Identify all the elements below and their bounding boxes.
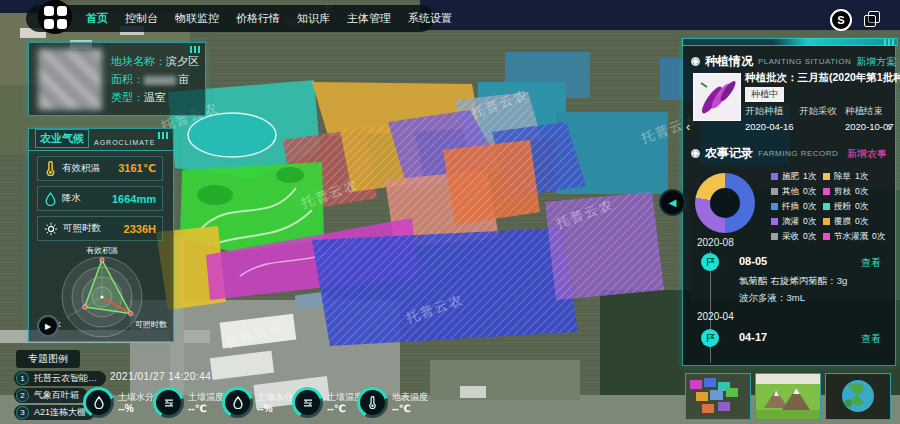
legend-item: 节水灌溉0次 (823, 229, 885, 244)
field-label: 开始种植 (745, 105, 783, 118)
sensor-soil-moisture-30[interactable]: 土壤水分30--% (83, 387, 164, 418)
legend-item: 施肥1次 (771, 169, 816, 184)
layer-number-badge: 1 (16, 372, 29, 385)
nav-item-knowledge-base[interactable]: 知识库 (297, 11, 330, 26)
legend-swatch (823, 233, 830, 240)
timeline-month: 2020-08 (697, 237, 734, 248)
panel-ticks-icon (158, 132, 168, 139)
sun-icon (44, 222, 58, 236)
section-bullet-icon (691, 149, 700, 158)
legend-swatch (771, 188, 778, 195)
stat-rainfall: 降水 1664mm (37, 186, 163, 211)
legend-item: 扦插0次 (771, 199, 816, 214)
layer-number-badge: 3 (16, 406, 29, 419)
legend-swatch (771, 233, 778, 240)
crop-photo-eggplant (693, 73, 741, 121)
droplet-icon (93, 396, 105, 409)
legend-swatch (823, 218, 830, 225)
legend-swatch (823, 188, 830, 195)
legend-item: 滴灌0次 (771, 214, 816, 229)
plot-area-row: 面积：亩 (111, 70, 199, 88)
farming-legend-col2: 除草1次 剪枝0次 授粉0次 覆膜0次 节水灌溉0次 (823, 169, 885, 244)
terrain-view-thumbnail[interactable] (755, 373, 821, 420)
carousel-prev-icon[interactable]: ‹ (686, 119, 690, 134)
planting-batch: 种植批次：三月茄(2020年第1批种植) (745, 71, 900, 85)
timeline-node-flag-icon (701, 253, 719, 271)
status-badge: 种植中 (745, 87, 784, 102)
agroclimate-panel: 农业气候 AGROCLIMATE 有效积温 3161℃ 降水 1664mm 可照… (28, 128, 174, 342)
thermometer-icon (367, 396, 378, 409)
nav-item-entity-management[interactable]: 主体管理 (347, 11, 391, 26)
field-label: 开始采收 (799, 105, 837, 118)
legend-item: 其他0次 (771, 184, 816, 199)
raindrop-icon (44, 192, 57, 206)
layer-item-1[interactable]: 1 托普云农智能… (14, 371, 106, 386)
agroclimate-title: 农业气候 (35, 129, 89, 148)
nav-item-price-market[interactable]: 价格行情 (236, 11, 280, 26)
play-button[interactable]: ▶ (37, 315, 59, 337)
nav-item-home[interactable]: 首页 (86, 11, 108, 26)
legend-item: 剪枝0次 (823, 184, 885, 199)
sensor-surface-temp[interactable]: 地表温度--℃ (357, 387, 428, 418)
radar-axis-top: 有效积温 (86, 246, 118, 255)
smart-agriculture-dashboard: 托普云农 托普云农 托普云农 托普云农 托普云农 托普云农 托普云农 托普云农 … (0, 0, 900, 424)
farming-section-header: 农事记录 FARMING RECORD 新增农事 (691, 145, 887, 162)
legend-swatch (823, 173, 830, 180)
nav-item-system-settings[interactable]: 系统设置 (408, 11, 452, 26)
legend-item: 覆膜0次 (823, 214, 885, 229)
app-logo-icon (38, 0, 72, 34)
legend-item: 除草1次 (823, 169, 885, 184)
view-record-link[interactable]: 查看 (861, 332, 881, 346)
panel-ticks-icon (884, 39, 894, 46)
soil-layers-icon (163, 397, 175, 409)
sensor-soil-moisture-70[interactable]: 土壤水分70--% (222, 387, 303, 418)
main-nav: 首页 控制台 物联监控 价格行情 知识库 主体管理 系统设置 (26, 5, 434, 32)
soil-layers-icon (302, 397, 314, 409)
nav-item-console[interactable]: 控制台 (125, 11, 158, 26)
droplet-icon (232, 396, 244, 409)
add-farming-record-button[interactable]: 新增农事 (847, 147, 887, 161)
panel-decorative-bar (682, 38, 898, 46)
field-value: 2020-04-16 (745, 121, 794, 132)
plot-type-row: 类型：温室 (111, 88, 199, 106)
nav-item-iot-monitor[interactable]: 物联监控 (175, 11, 219, 26)
legend-swatch (771, 203, 778, 210)
view-record-link[interactable]: 查看 (861, 256, 881, 270)
legend-swatch (771, 218, 778, 225)
farming-legend-col1: 施肥1次 其他0次 扦插0次 滴灌0次 采收0次 (771, 169, 816, 244)
plot-name-row: 地块名称：滨夕区 (111, 52, 199, 70)
globe-view-thumbnail[interactable] (825, 373, 891, 420)
thermometer-icon (44, 161, 57, 176)
legend-item: 采收0次 (771, 229, 816, 244)
redacted-area-value (144, 76, 176, 85)
current-datetime: 2021/01/27 14:20:44 (110, 371, 211, 382)
legend-item: 授粉0次 (823, 199, 885, 214)
legend-swatch (823, 203, 830, 210)
farming-donut (695, 173, 755, 233)
sync-icon[interactable]: S (830, 9, 852, 31)
panel-collapse-button[interactable]: ◀ (659, 189, 686, 216)
planting-section-header: 种植情况 PLANTING SITUATION 新增方案 (691, 53, 887, 70)
plot-photo (38, 49, 102, 110)
record-detail-line: 氯菊酯 右旋烯丙菊酯：3g (739, 275, 847, 288)
record-detail-line: 波尔多液：3mL (739, 292, 805, 305)
layer-item-2[interactable]: 2 气象百叶箱 (14, 388, 88, 403)
section-bullet-icon (691, 57, 700, 66)
legend-swatch (771, 173, 778, 180)
thematic-legend-toggle[interactable]: 专题图例 (16, 350, 80, 368)
timeline-month: 2020-04 (697, 311, 734, 322)
plot-info-panel: 地块名称：滨夕区 面积：亩 类型：温室 (28, 42, 206, 116)
map-view-thumbnail[interactable] (685, 373, 751, 420)
stat-effective-temp: 有效积温 3161℃ (37, 156, 163, 181)
add-plan-button[interactable]: 新增方案 (856, 55, 896, 69)
radar-axis-right: 可照时数 (135, 320, 167, 329)
timeline-entry-date: 08-05 (739, 255, 767, 267)
agroclimate-subtitle: AGROCLIMATE (94, 139, 155, 148)
layer-number-badge: 2 (16, 389, 29, 402)
field-label: 种植结束 (845, 105, 883, 118)
timeline-node-flag-icon (701, 329, 719, 347)
view-switcher (685, 373, 891, 420)
timeline-entry-date: 04-17 (739, 331, 767, 343)
stat-sunshine-hours: 可照时数 2336H (37, 216, 163, 241)
windows-layers-icon[interactable] (864, 11, 882, 29)
right-info-panel: 种植情况 PLANTING SITUATION 新增方案 ‹ › 种植批次：三月… (682, 40, 896, 366)
carousel-next-icon[interactable]: › (887, 119, 891, 134)
